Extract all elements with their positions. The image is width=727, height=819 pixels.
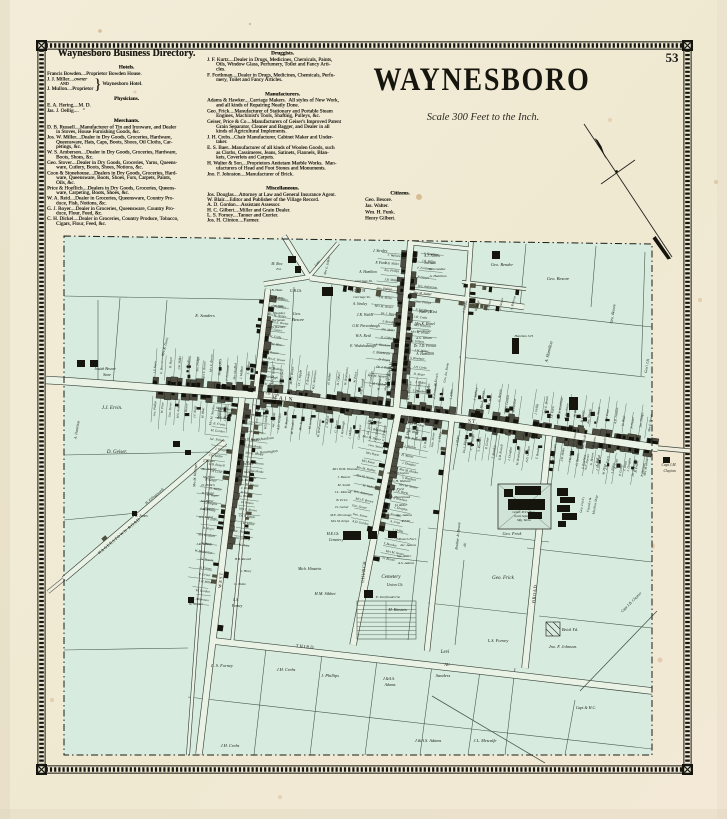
svg-text:W. Snyder: W. Snyder — [189, 602, 204, 606]
svg-text:J.H. Crebs: J.H. Crebs — [277, 667, 296, 672]
svg-text:J. Walker: J. Walker — [241, 470, 254, 474]
svg-text:Geo.: Geo. — [293, 311, 301, 316]
svg-text:A.J. Norris: A.J. Norris — [423, 254, 440, 258]
svg-text:Jas Miller: Jas Miller — [200, 499, 214, 503]
svg-text:D. Ford: D. Ford — [391, 487, 403, 491]
svg-text:ST.: ST. — [242, 413, 248, 419]
svg-text:Jno. F. Johnson.: Jno. F. Johnson. — [549, 644, 578, 649]
svg-text:G. Elden: G. Elden — [234, 582, 246, 586]
svg-text:WAYNESBORO: WAYNESBORO — [374, 61, 591, 98]
svg-text:W. Blair: W. Blair — [201, 406, 206, 418]
svg-text:Coach Fact.: Coach Fact. — [399, 537, 416, 541]
svg-text:Mrs H. Wallace: Mrs H. Wallace — [388, 479, 411, 483]
svg-text:A. Hamilton: A. Hamilton — [358, 270, 377, 274]
svg-text:A. Straley: A. Straley — [352, 302, 368, 306]
svg-text:ST.: ST. — [468, 418, 479, 425]
svg-text:W. Peters: W. Peters — [271, 296, 285, 300]
svg-text:Est.: Est. — [275, 267, 281, 271]
svg-text:J.R. Saltery: J.R. Saltery — [196, 542, 212, 546]
svg-text:Jno Null: Jno Null — [424, 261, 436, 265]
svg-text:F. Funk: F. Funk — [375, 261, 387, 265]
svg-text:B. Hake: B. Hake — [272, 288, 283, 292]
svg-text:J. Beaver: J. Beaver — [337, 475, 351, 479]
svg-text:Mrs Snyder: Mrs Snyder — [200, 467, 217, 471]
svg-text:Cemetery: Cemetery — [329, 538, 344, 542]
svg-text:Jac. Adams: Jac. Adams — [396, 513, 413, 517]
svg-text:AV.: AV. — [463, 542, 468, 548]
svg-text:A.S. Wilson: A.S. Wilson — [415, 336, 432, 340]
svg-text:Scale 300 Feet to the Inch.: Scale 300 Feet to the Inch. — [427, 112, 540, 123]
svg-text:Mrs Buchtel: Mrs Buchtel — [268, 325, 285, 329]
svg-text:G.B.Ch.: G.B.Ch. — [290, 289, 302, 293]
svg-text:53: 53 — [666, 50, 680, 65]
svg-text:J.J. Ervin.: J.J. Ervin. — [102, 406, 123, 411]
svg-text:Besore: Besore — [292, 317, 304, 322]
svg-text:C. Wisotzkey: C. Wisotzkey — [269, 311, 286, 315]
svg-text:G. Elden: G. Elden — [239, 494, 251, 498]
svg-text:Cemetery: Cemetery — [381, 575, 401, 580]
svg-text:R.F.Dr: R.F.Dr — [401, 519, 412, 523]
svg-text:D. Ongyr: D. Ongyr — [201, 491, 215, 495]
svg-text:Mrs M. Kreps: Mrs M. Kreps — [330, 519, 350, 523]
svg-text:Union Ch.: Union Ch. — [387, 582, 404, 587]
svg-text:D.B. Russell: D.B. Russell — [237, 478, 254, 482]
svg-text:J.L. Metcalfe: J.L. Metcalfe — [473, 738, 496, 743]
svg-text:W. Jones: W. Jones — [134, 514, 148, 518]
svg-text:Geo. Frick: Geo. Frick — [502, 531, 522, 536]
svg-text:Mrs N. Clayton: Mrs N. Clayton — [386, 471, 409, 475]
svg-text:J. Kiser: J. Kiser — [241, 486, 252, 490]
svg-text:NORTH: NORTH — [350, 289, 365, 293]
svg-text:D. Rider: D. Rider — [394, 503, 408, 507]
svg-text:M. Elden: M. Elden — [202, 475, 215, 479]
svg-text:Geo. Frick: Geo. Frick — [492, 576, 514, 581]
svg-text:J.R. Welch: J.R. Welch — [357, 313, 373, 317]
svg-text:Sanders: Sanders — [436, 673, 451, 678]
svg-text:Capt J.M.: Capt J.M. — [661, 463, 676, 467]
svg-text:Wm Siglor: Wm Siglor — [199, 515, 214, 519]
svg-text:W. Moorehead: W. Moorehead — [390, 495, 411, 499]
svg-text:Adams: Adams — [384, 682, 396, 687]
svg-text:L.S. Forney: L.S. Forney — [487, 638, 509, 643]
svg-text:B. Price: B. Price — [336, 498, 348, 502]
svg-text:Mich. Hinstein.: Mich. Hinstein. — [297, 567, 322, 571]
svg-text:J. Buchanan: J. Buchanan — [269, 318, 285, 322]
svg-text:J. Mathews: J. Mathews — [199, 507, 215, 511]
svg-text:Carriage Sh.: Carriage Sh. — [353, 295, 371, 299]
svg-text:Geo. Besore: Geo. Besore — [547, 276, 570, 281]
svg-text:W.A. Reid: W.A. Reid — [355, 334, 370, 338]
svg-text:Mrs H.M. Hoover: Mrs H.M. Hoover — [331, 467, 358, 471]
svg-text:L.S.: L.S. — [232, 598, 239, 602]
svg-text:D. Geiser: D. Geiser — [334, 505, 349, 509]
svg-text:W. Grandke: W. Grandke — [429, 267, 446, 271]
svg-text:W. Price: W. Price — [160, 401, 165, 413]
svg-text:J. Besore: J. Besore — [203, 459, 216, 463]
svg-text:Jac. Adams: Jac. Adams — [400, 543, 417, 547]
svg-text:Mrs K. Kinsel: Mrs K. Kinsel — [414, 322, 435, 326]
svg-text:Levi: Levi — [440, 650, 450, 655]
svg-text:M.E. Parsonage: M.E. Parsonage — [329, 513, 352, 517]
svg-text:D. Hillich: D. Hillich — [200, 483, 215, 487]
svg-text:J. Fallon: J. Fallon — [271, 304, 284, 308]
svg-text:Clayton.: Clayton. — [664, 469, 677, 473]
svg-text:Capt & H.C.: Capt & H.C. — [576, 705, 596, 710]
svg-text:E. Sanders: E. Sanders — [194, 313, 215, 318]
svg-text:J.L. Metcalf: J.L. Metcalf — [335, 490, 353, 494]
svg-text:E. Wishakabaugh: E. Wishakabaugh — [349, 344, 376, 348]
svg-text:G.H. Parsonbaugh: G.H. Parsonbaugh — [352, 324, 379, 328]
svg-text:M. Smith: M. Smith — [337, 483, 351, 487]
svg-text:Carriage Sh.: Carriage Sh. — [355, 279, 373, 283]
svg-text:Hamilton S.H.: Hamilton S.H. — [514, 334, 534, 338]
svg-text:Brick Yd.: Brick Yd. — [562, 627, 578, 632]
svg-text:H.B. Russell: H.B. Russell — [234, 557, 251, 561]
svg-text:J.&A.S.: J.&A.S. — [383, 676, 395, 681]
svg-text:J.&A.S. Adams: J.&A.S. Adams — [415, 738, 442, 743]
svg-text:J.H. Crebs: J.H. Crebs — [221, 743, 240, 748]
svg-text:A.S. Adams: A.S. Adams — [397, 561, 415, 565]
svg-text:A. Hamilton: A. Hamilton — [428, 274, 446, 278]
svg-text:J. Hisey: J. Hisey — [241, 569, 252, 573]
svg-text:Dr. T.D. French: Dr. T.D. French — [413, 344, 437, 348]
svg-text:Josiah Besore: Josiah Besore — [94, 367, 116, 371]
svg-text:Store: Store — [103, 373, 111, 377]
svg-text:J. Phillips: J. Phillips — [321, 673, 339, 678]
svg-text:Mfg. Works: Mfg. Works — [516, 518, 532, 522]
svg-text:J. Straley: J. Straley — [373, 249, 388, 253]
svg-text:AV.: AV. — [443, 662, 451, 667]
svg-text:Jac. Rider: Jac. Rider — [397, 554, 412, 558]
svg-text:M.E.Ch.: M.E.Ch. — [326, 532, 340, 536]
svg-text:J. Wisher: J. Wisher — [241, 462, 254, 466]
svg-text:H.M. Sibbet: H.M. Sibbet — [313, 591, 336, 596]
svg-text:Geo. Bender: Geo. Bender — [491, 262, 513, 267]
svg-text:Forney: Forney — [231, 604, 243, 608]
svg-text:M. Row: M. Row — [270, 262, 283, 266]
svg-text:Jno Stoner: Jno Stoner — [416, 329, 432, 333]
svg-text:E. Dorflanderche: E. Dorflanderche — [375, 595, 401, 599]
svg-text:D. Geiser.: D. Geiser. — [106, 450, 127, 455]
svg-text:L. S. Forney: L. S. Forney — [210, 663, 233, 668]
svg-text:A. Hamilton: A. Hamilton — [415, 352, 434, 356]
svg-text:M. Hinstein.: M. Hinstein. — [388, 608, 408, 612]
